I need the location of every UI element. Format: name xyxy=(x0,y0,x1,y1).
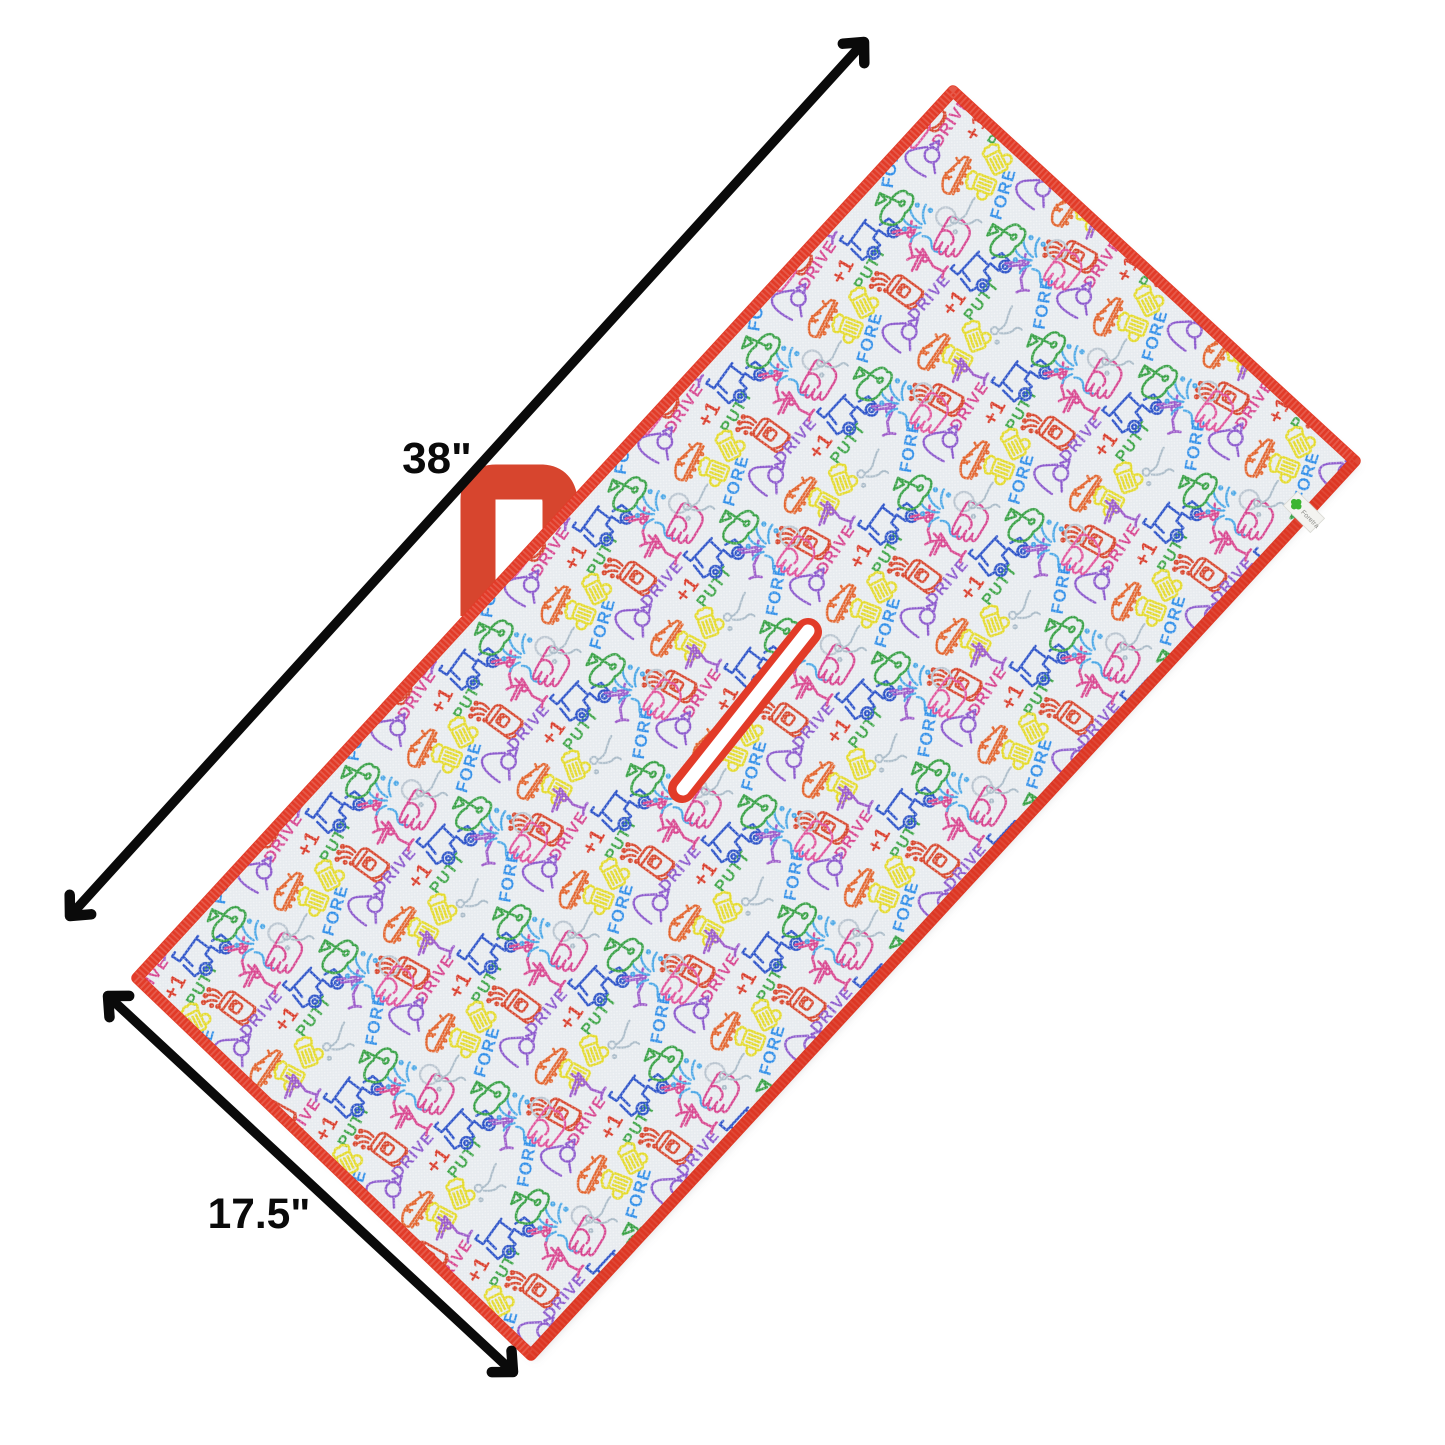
svg-text:38": 38" xyxy=(402,434,472,483)
svg-text:17.5": 17.5" xyxy=(208,1191,311,1238)
